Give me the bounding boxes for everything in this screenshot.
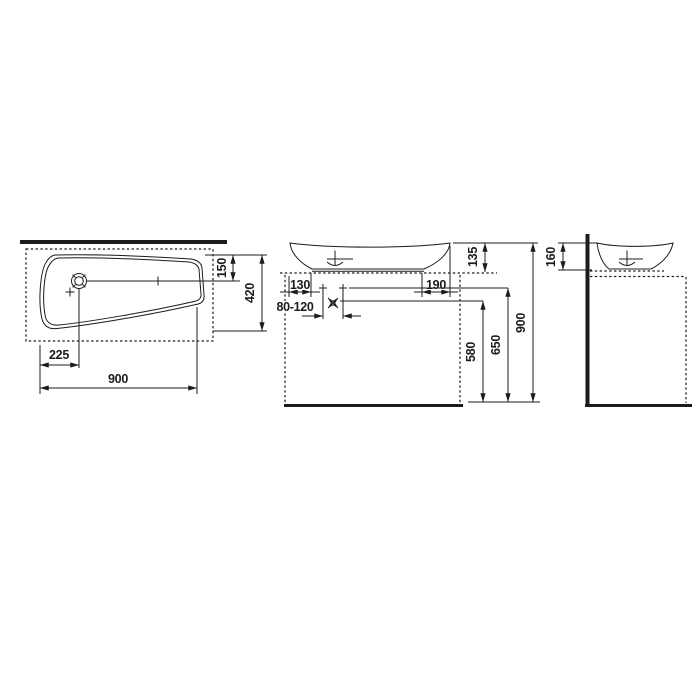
plan-basin-outer-outline <box>40 255 204 329</box>
front-dim-580: 580 <box>464 301 483 402</box>
front-adjustable-position-icon <box>328 298 338 308</box>
side-drain-symbol <box>619 251 643 267</box>
front-dim-650: 650 <box>489 288 508 402</box>
side-basin-profile <box>597 243 673 269</box>
front-dim-130-label: 130 <box>290 278 310 292</box>
front-dim-650-label: 650 <box>489 335 503 355</box>
front-dim-190-label: 190 <box>426 278 446 292</box>
plan-dim-150: 150 <box>205 255 267 281</box>
plan-dim-420-label: 420 <box>243 283 257 303</box>
plan-dim-150-label: 150 <box>215 258 229 278</box>
front-dim-80-120-label: 80-120 <box>276 300 313 314</box>
plan-fixing-cross <box>66 288 75 297</box>
front-dim-580-label: 580 <box>464 342 478 362</box>
front-dim-900: 900 <box>514 243 533 402</box>
front-drain-symbol <box>327 251 353 267</box>
front-dim-135: 135 <box>453 243 538 272</box>
front-view: 130 190 80-120 <box>274 243 540 406</box>
plan-dim-900-label: 900 <box>108 372 128 386</box>
front-dim-130: 130 <box>280 273 320 297</box>
side-dim-160-label: 160 <box>544 247 558 267</box>
washbasin-dimension-drawing: 225 900 150 420 <box>0 0 700 700</box>
front-tap-position-cross-left <box>319 284 327 292</box>
front-basin-profile <box>290 243 450 269</box>
side-dim-160: 160 <box>544 243 598 270</box>
technical-drawing-sheet: 225 900 150 420 <box>0 0 700 700</box>
plan-dim-225: 225 <box>40 345 79 394</box>
front-tap-position-cross-right <box>339 284 347 292</box>
side-view: 160 <box>544 234 692 406</box>
plan-view: 225 900 150 420 <box>20 242 267 394</box>
plan-center-cross <box>154 277 163 286</box>
plan-drain-symbol <box>72 274 87 289</box>
front-dim-135-label: 135 <box>466 247 480 267</box>
front-dim-900-label: 900 <box>514 313 528 333</box>
plan-counter-dashed-outline <box>26 249 213 341</box>
plan-basin-inner-outline <box>44 258 201 325</box>
front-dim-80-120: 80-120 <box>274 300 361 316</box>
plan-dim-225-label: 225 <box>49 348 69 362</box>
